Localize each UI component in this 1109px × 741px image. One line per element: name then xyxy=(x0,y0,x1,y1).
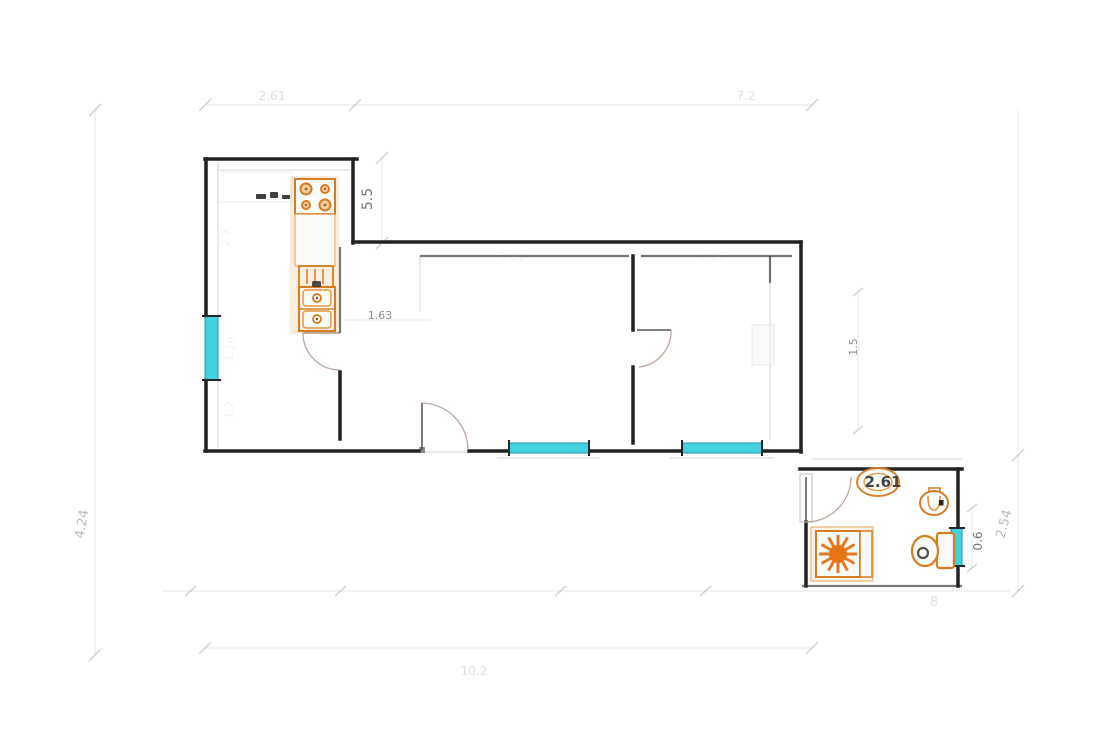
wardrobe-outline xyxy=(752,325,774,365)
dim-living-width-label: 3.61 xyxy=(500,251,525,264)
living-room-window xyxy=(497,440,600,458)
dim-kitchen-a-label: 2.7 xyxy=(219,229,233,248)
bathroom-door xyxy=(806,477,851,522)
dim-kitchen-b-label: 1.19 xyxy=(223,336,238,362)
dim-kitchen-c-label: 1.2 xyxy=(222,401,236,420)
floor-plan-drawing: 2.61 7.2 5.5 4.24 2.7 1.19 1.2 1.63 3.61… xyxy=(0,0,1109,741)
floor-plan-canvas: 2.61 7.2 5.5 4.24 2.7 1.19 1.2 1.63 3.61… xyxy=(0,0,1109,741)
kitchen-fixtures xyxy=(218,172,338,333)
kitchen-door xyxy=(303,333,340,370)
dim-bedroom-width-label: 2.95 xyxy=(700,251,725,264)
misc-glyph-label: 8 xyxy=(930,595,938,610)
toilet-icon xyxy=(912,533,954,568)
dim-top-right-label: 7.2 xyxy=(736,89,755,103)
shower-icon xyxy=(811,527,873,581)
double-sink-icon xyxy=(299,287,335,331)
dim-bath-height-label: 2.54 xyxy=(993,508,1015,540)
dim-bath-window-label: 0.6 xyxy=(971,531,985,550)
bedroom-window xyxy=(670,440,774,458)
dim-bedroom-side-label: 1.5 xyxy=(847,338,860,356)
kitchen-window xyxy=(202,316,221,380)
dim-kitchen-height-label: 5.5 xyxy=(360,188,376,210)
dim-bottom-span-label: 10.2 xyxy=(461,664,488,678)
entry-door xyxy=(419,403,468,453)
dimension-lines xyxy=(89,99,1024,661)
stove-hob-icon xyxy=(295,179,335,214)
dimension-labels: 2.61 7.2 5.5 4.24 2.7 1.19 1.2 1.63 3.61… xyxy=(73,89,1016,678)
dim-left-height-label: 4.24 xyxy=(73,509,93,540)
dim-top-left-label: 2.61 xyxy=(259,89,286,103)
counter-segment xyxy=(295,214,335,266)
dim-bath-width-label: 2.61 xyxy=(864,473,901,491)
dim-hallway-label: 1.63 xyxy=(368,309,393,322)
bidet-icon xyxy=(920,488,948,515)
interior-walls xyxy=(340,247,792,443)
bedroom-door xyxy=(637,330,671,367)
door-hinge xyxy=(419,447,425,453)
